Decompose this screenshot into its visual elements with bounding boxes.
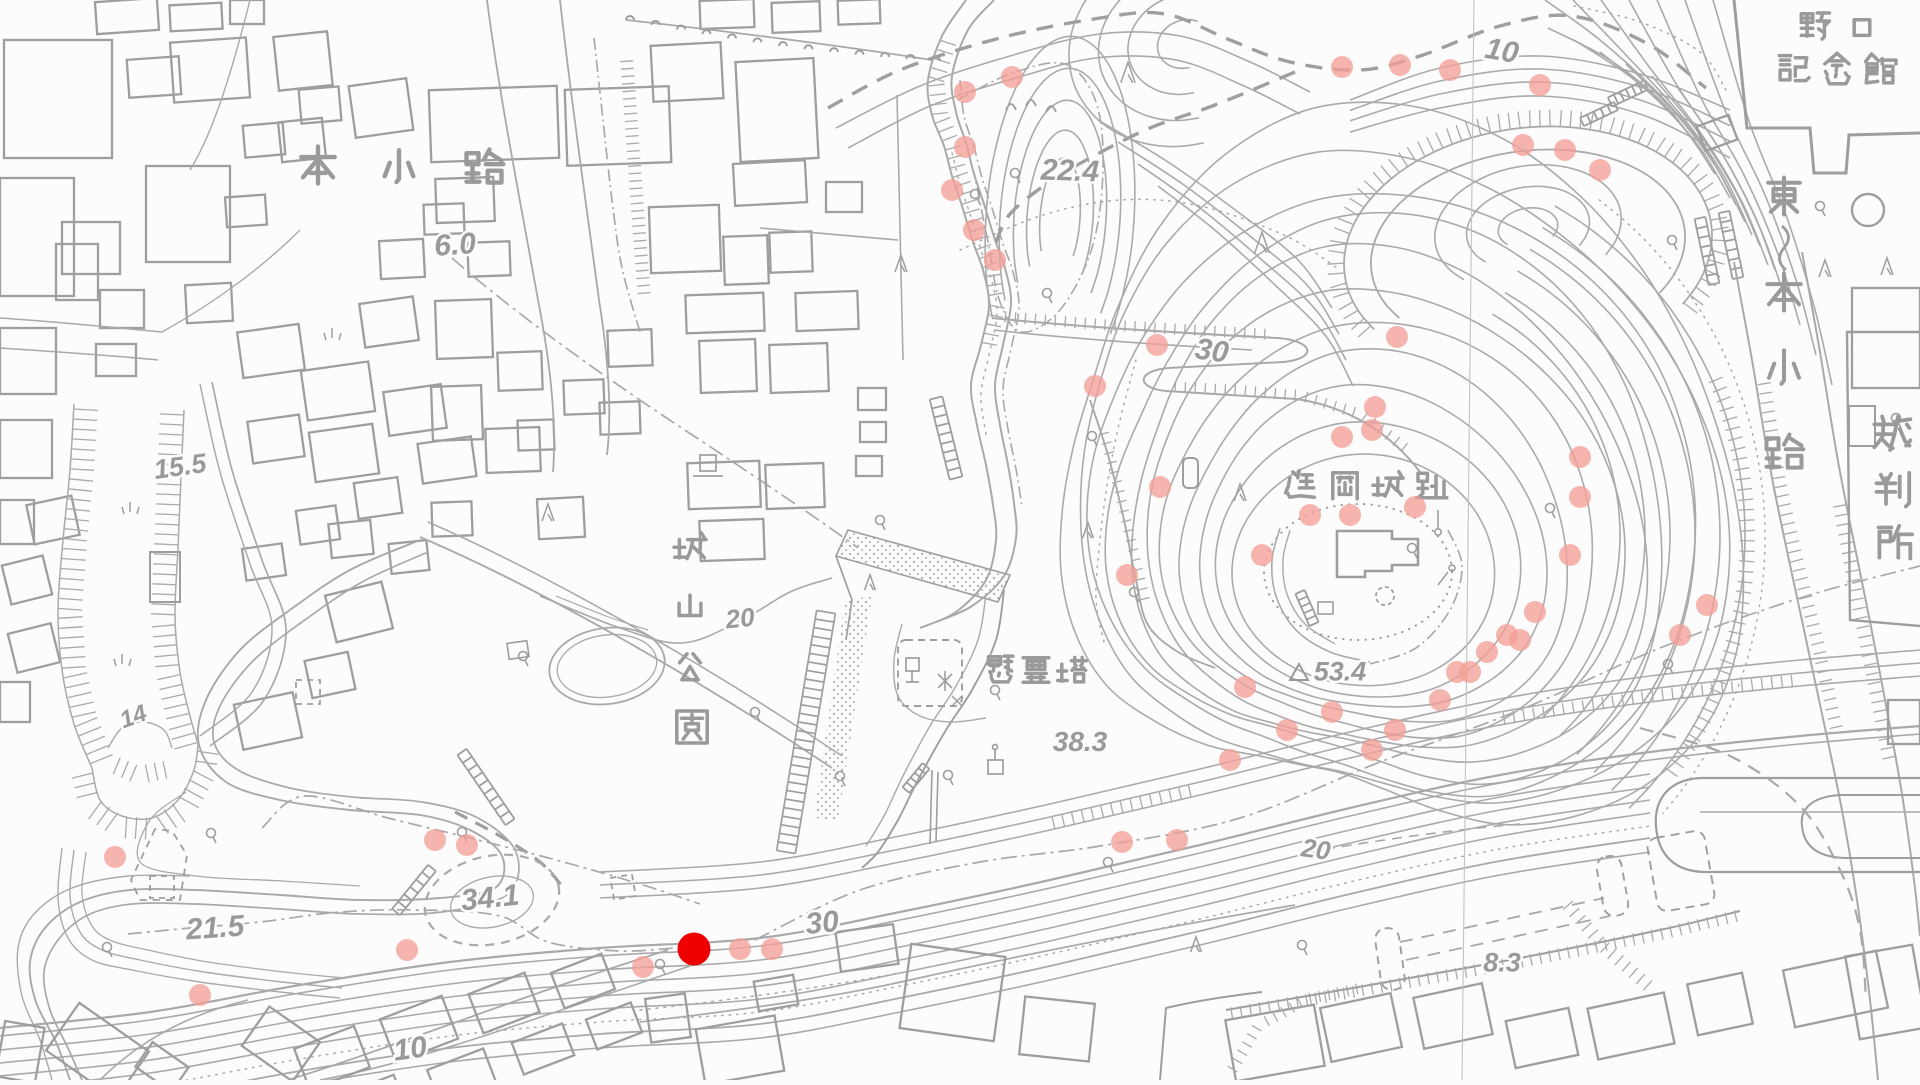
svg-text:53.4: 53.4	[1314, 656, 1367, 686]
svg-text:34.1: 34.1	[459, 879, 521, 918]
svg-text:6.0: 6.0	[433, 227, 477, 263]
svg-text:30: 30	[1193, 332, 1231, 369]
svg-text:10: 10	[1483, 32, 1522, 70]
svg-text:20: 20	[1299, 832, 1333, 866]
svg-text:10: 10	[391, 1030, 429, 1067]
svg-text:30: 30	[804, 905, 841, 941]
svg-text:22.4: 22.4	[1039, 153, 1100, 188]
svg-text:20: 20	[723, 602, 756, 635]
svg-text:21.5: 21.5	[184, 909, 247, 946]
svg-text:38.3: 38.3	[1053, 726, 1108, 757]
svg-text:8.3: 8.3	[1483, 947, 1521, 977]
